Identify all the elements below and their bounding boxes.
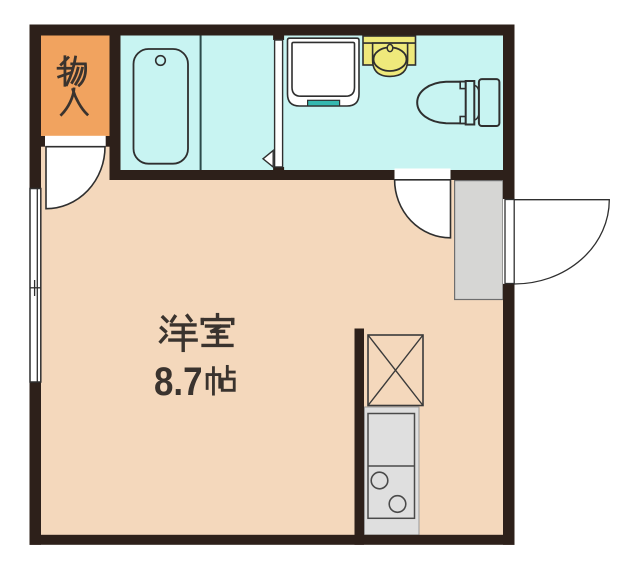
- svg-text:8.7: 8.7: [154, 360, 203, 404]
